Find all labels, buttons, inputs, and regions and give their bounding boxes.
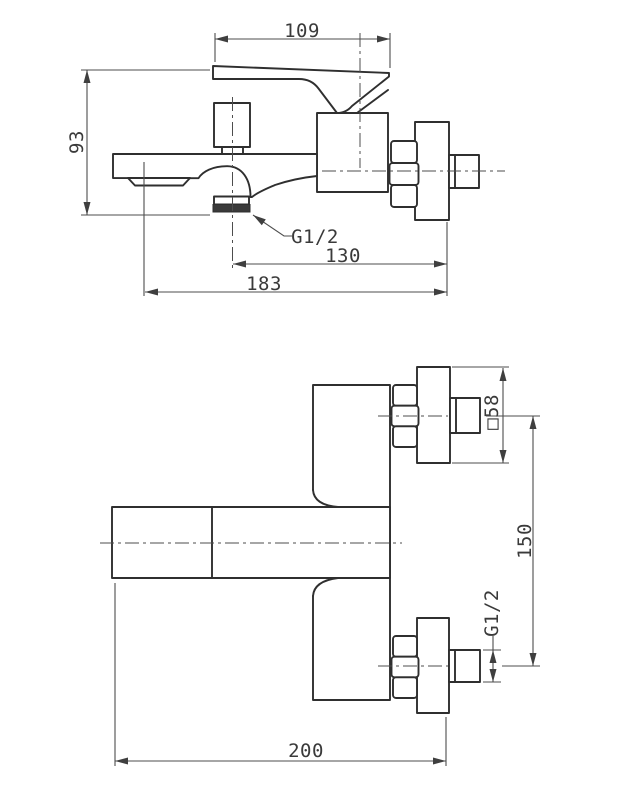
connection-nut xyxy=(390,141,419,207)
arrowhead xyxy=(233,261,246,268)
label-connection-thread-value: G1/2 xyxy=(481,589,503,637)
arrowhead xyxy=(434,261,447,268)
shower-outlet-thread-ring xyxy=(213,205,250,213)
dim-escutcheon-size-value: □58 xyxy=(481,394,503,430)
dim-total-height: 93 xyxy=(66,70,210,215)
dim-handle-length: 109 xyxy=(215,20,390,68)
arrowhead xyxy=(253,215,266,225)
dim-connection-distance-value: 150 xyxy=(514,523,536,559)
lower-supply-stub xyxy=(449,650,480,682)
dim-outlet-to-wall-value: 130 xyxy=(325,245,361,267)
plan-view: □58 150 G1/2 200 xyxy=(100,367,540,766)
upper-escutcheon xyxy=(417,367,450,463)
arrowhead xyxy=(530,416,537,429)
arrowhead xyxy=(84,70,91,83)
dim-total-height-value: 93 xyxy=(66,130,88,154)
faucet-technical-drawing: 109 93 G1/2 130 183 xyxy=(0,0,620,800)
lower-connection-nut xyxy=(392,636,419,698)
dim-handle-length-value: 109 xyxy=(284,20,320,42)
label-outlet-thread: G1/2 xyxy=(253,215,339,248)
dim-overall-depth-value: 200 xyxy=(288,740,324,762)
arrowhead xyxy=(500,368,507,381)
arrowhead xyxy=(500,450,507,463)
arrowhead xyxy=(145,289,158,296)
technical-drawing-canvas: 109 93 G1/2 130 183 xyxy=(0,0,620,800)
arrowhead xyxy=(84,202,91,215)
arrowhead xyxy=(215,36,228,43)
body-fillet-bottom xyxy=(313,578,338,596)
dim-spout-reach-value: 183 xyxy=(246,273,282,295)
upper-supply-stub xyxy=(450,398,480,433)
side-view: 109 93 G1/2 130 183 xyxy=(66,20,505,296)
arrowhead xyxy=(490,650,497,663)
arrowhead xyxy=(434,289,447,296)
arrowhead xyxy=(433,758,446,765)
arrowhead xyxy=(530,653,537,666)
label-connection-thread: G1/2 xyxy=(481,589,503,682)
shower-outlet-collar xyxy=(214,197,249,205)
valve-body xyxy=(317,113,388,192)
aerator xyxy=(128,178,190,186)
arrowhead xyxy=(115,758,128,765)
arrowhead xyxy=(490,669,497,682)
arrowhead xyxy=(377,36,390,43)
body-fillet-top xyxy=(313,490,338,507)
